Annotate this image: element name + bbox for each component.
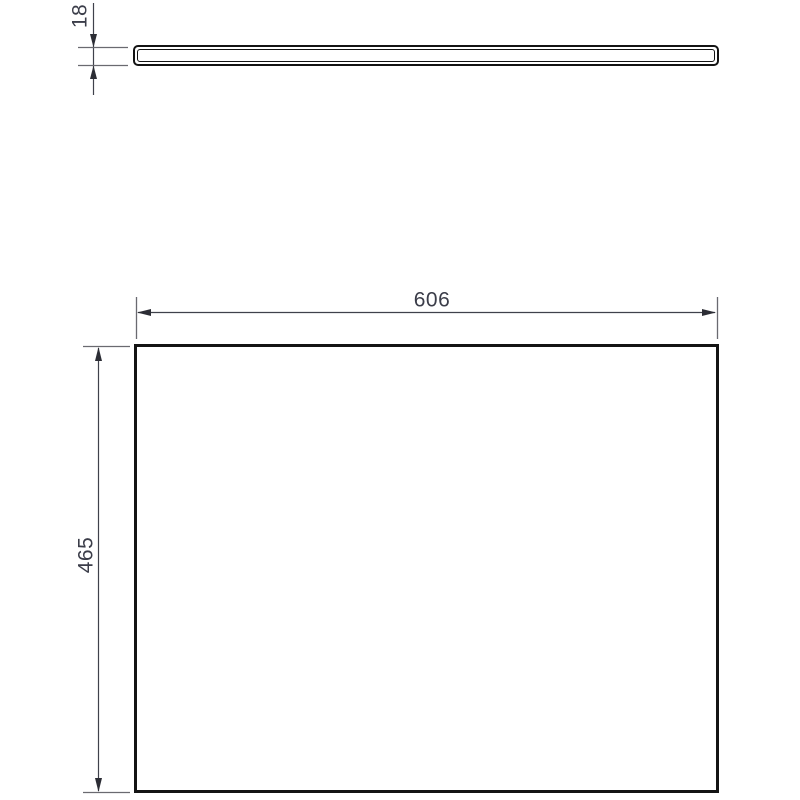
technical-drawing-canvas: 18 606 465 xyxy=(0,0,800,800)
thickness-arrow-up xyxy=(90,66,97,80)
height-arrow-down xyxy=(95,778,102,792)
dimension-height-label: 465 xyxy=(76,537,97,574)
dimension-width-label: 606 xyxy=(414,290,451,311)
panel-side-view-inner-edge xyxy=(137,49,715,62)
width-arrow-left xyxy=(137,309,151,316)
width-arrow-right xyxy=(702,309,716,316)
dimension-thickness-label: 18 xyxy=(70,4,91,28)
panel-side-view xyxy=(133,45,719,66)
panel-front-view xyxy=(134,344,719,793)
height-arrow-up xyxy=(95,347,102,361)
thickness-arrow-down xyxy=(90,34,97,48)
